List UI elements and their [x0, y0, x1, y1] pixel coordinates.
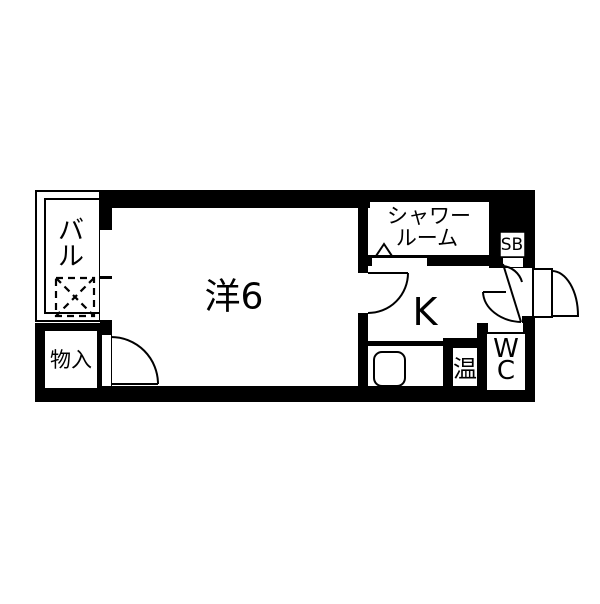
- washing-machine-area-icon: [56, 278, 94, 316]
- kitchen-door-swing-icon: [368, 273, 408, 313]
- balcony-window-upper: [100, 230, 112, 276]
- toilet-door-opening: [488, 323, 523, 332]
- kitchen-door-opening: [358, 273, 368, 313]
- balcony: バ ル: [36, 191, 100, 321]
- kitchen-sink-icon: [374, 352, 405, 386]
- floorplan-drawing: バ ル: [0, 0, 600, 600]
- entry-door-icon: [533, 269, 578, 317]
- shower-room-label-line1: シャワー: [387, 204, 471, 228]
- water-heater-label: 温: [453, 355, 477, 383]
- storage-door-opening: [102, 335, 111, 386]
- shoe-box-label: SB: [501, 235, 523, 255]
- kitchen-counter-edge: [368, 341, 443, 346]
- balcony-window-lower: [100, 279, 112, 320]
- storage-label: 物入: [50, 348, 92, 372]
- shower-room-label-line2: ルーム: [396, 226, 458, 250]
- kitchen-label: K: [413, 290, 439, 334]
- storage-door-swing-icon: [111, 337, 158, 384]
- shower-door-opening: [372, 258, 427, 266]
- western-room-label: 洋6: [205, 277, 264, 318]
- floorplan-canvas: バ ル: [0, 0, 600, 600]
- toilet-label-line2: C: [497, 356, 515, 386]
- balcony-label-char-2: ル: [58, 242, 84, 272]
